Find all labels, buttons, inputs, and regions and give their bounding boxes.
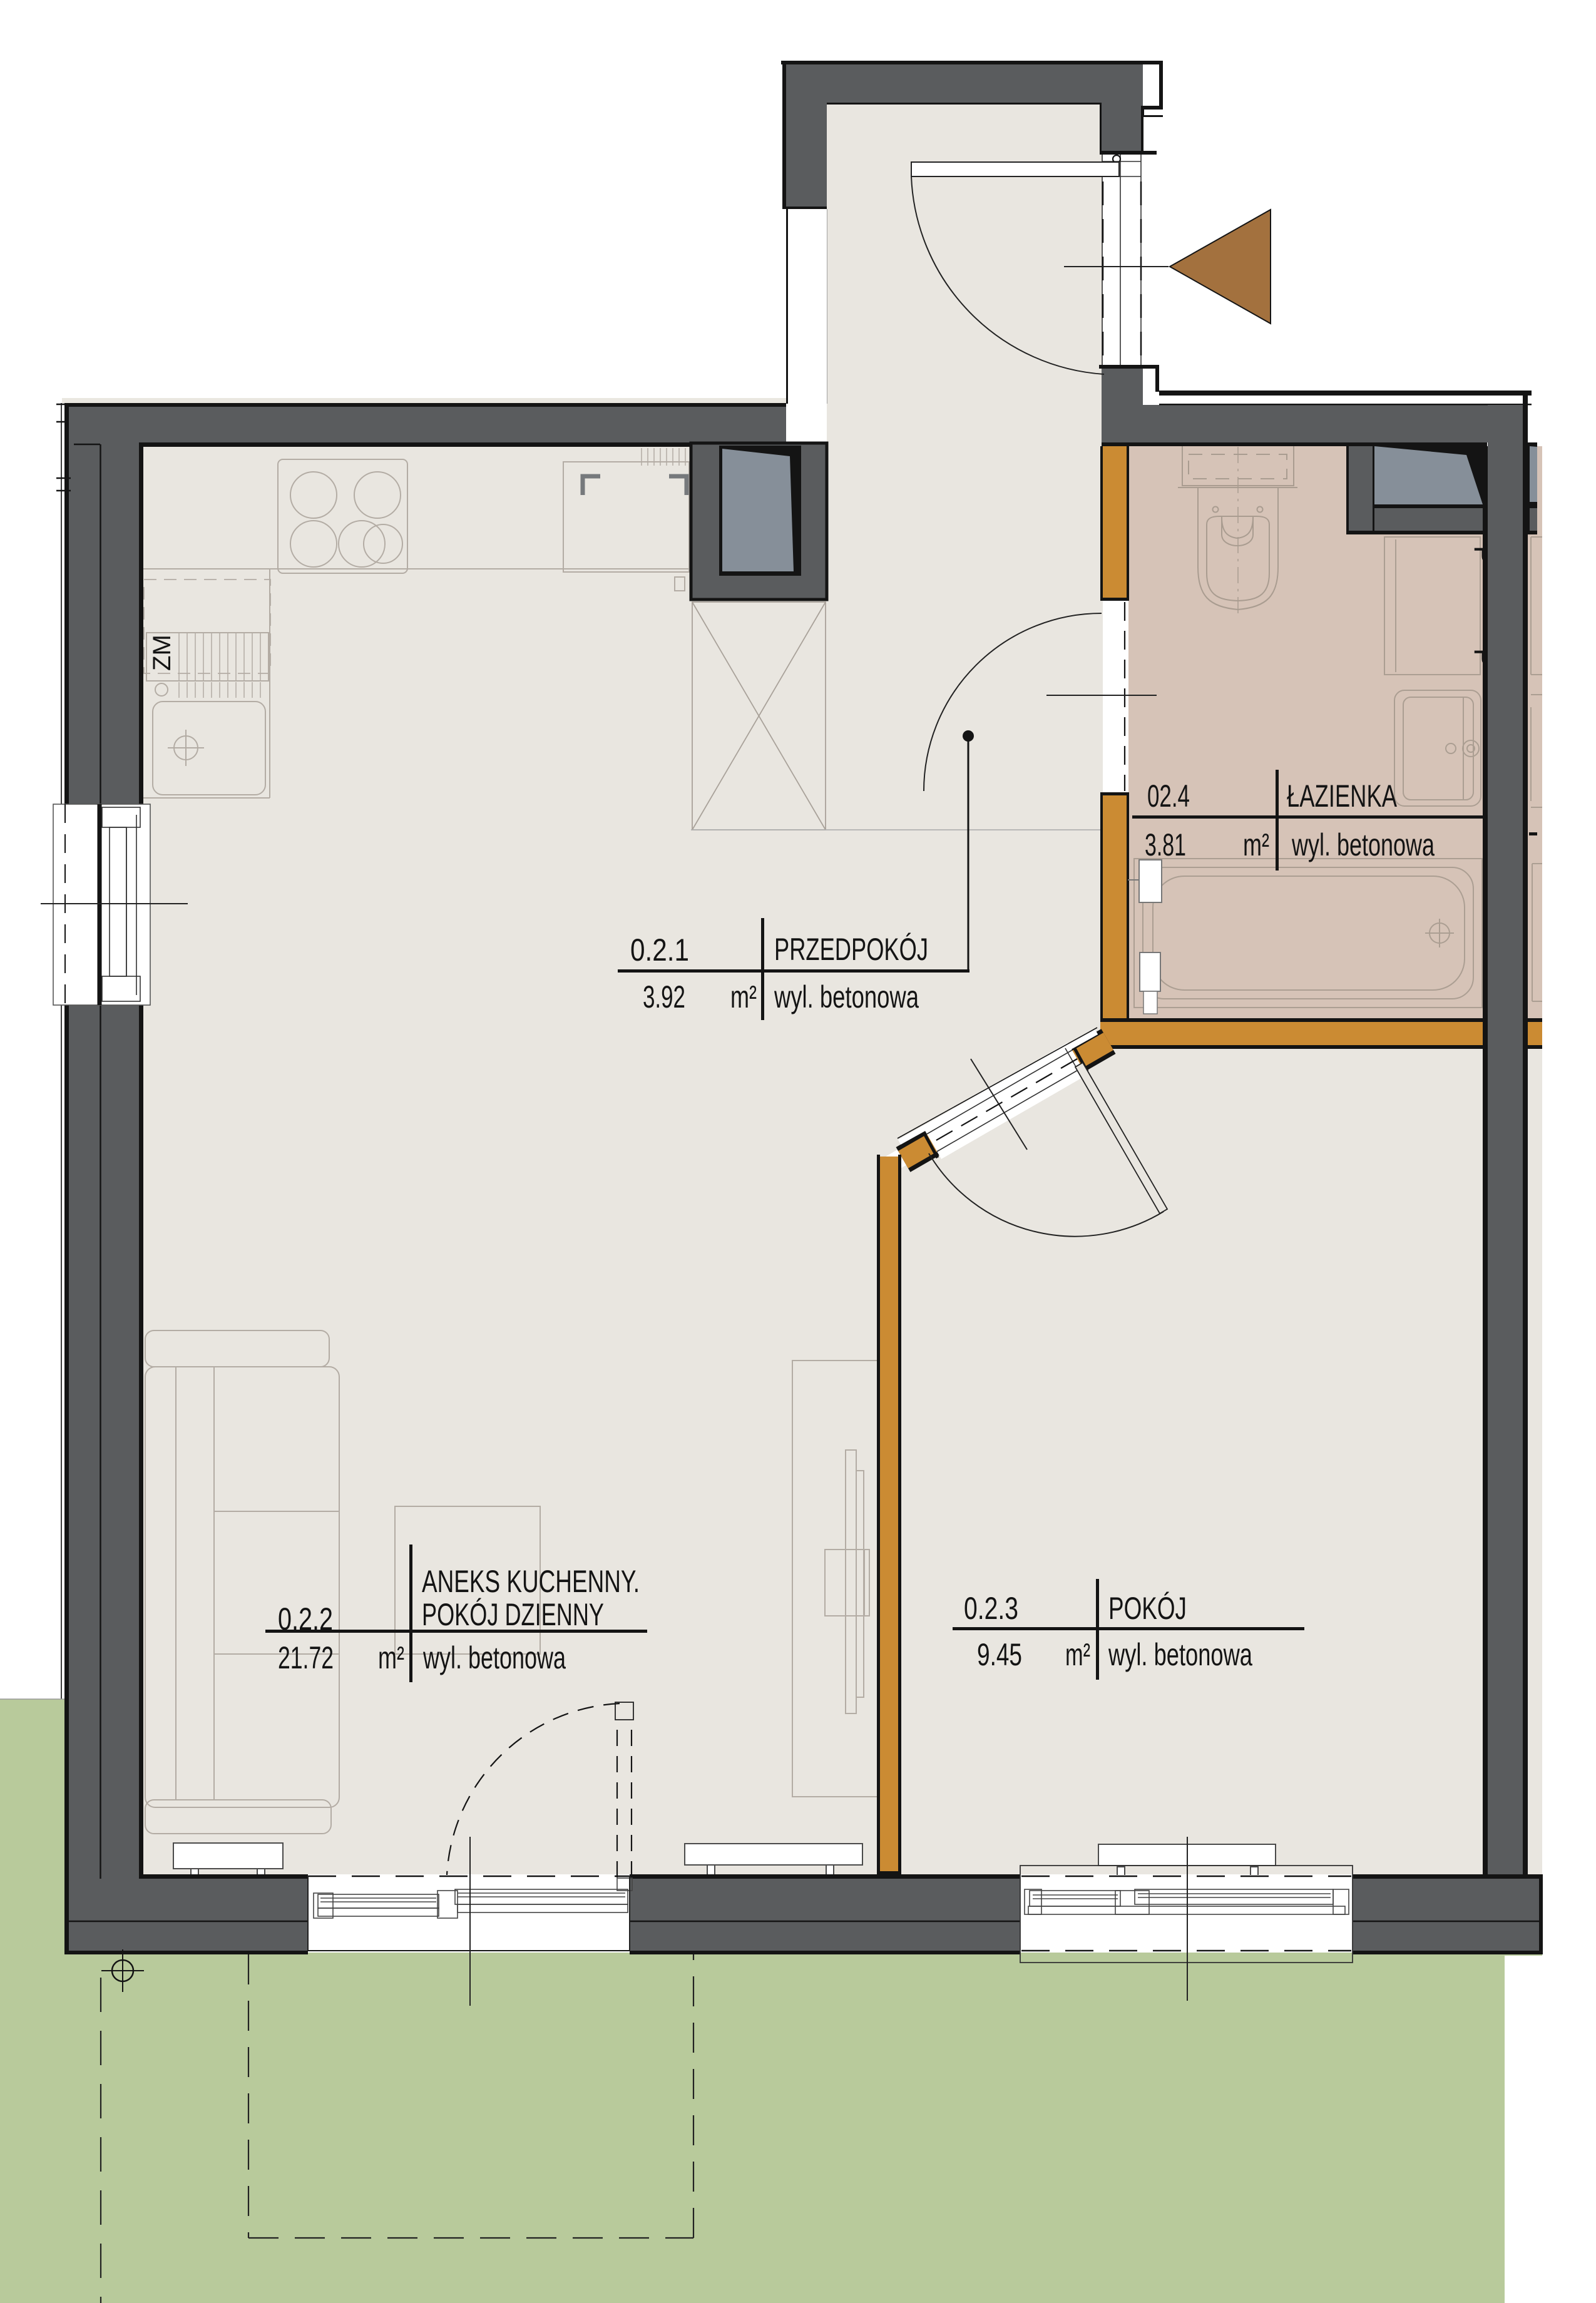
svg-text:wyl. betonowa: wyl. betonowa — [774, 979, 919, 1014]
svg-text:0.2.3: 0.2.3 — [964, 1591, 1018, 1626]
svg-text:02.4: 02.4 — [1147, 779, 1190, 814]
svg-text:wyl. betonowa: wyl. betonowa — [1291, 827, 1435, 862]
svg-text:9.45: 9.45 — [977, 1637, 1022, 1672]
svg-text:PRZEDPOKÓJ: PRZEDPOKÓJ — [774, 932, 928, 967]
svg-text:ZM: ZM — [148, 635, 176, 671]
svg-text:m²: m² — [730, 979, 757, 1014]
svg-text:3.81: 3.81 — [1145, 827, 1186, 862]
svg-text:POKÓJ DZIENNY: POKÓJ DZIENNY — [422, 1597, 604, 1632]
svg-text:wyl. betonowa: wyl. betonowa — [422, 1640, 566, 1675]
svg-text:3.92: 3.92 — [643, 979, 685, 1014]
svg-text:0.2.1: 0.2.1 — [630, 932, 689, 968]
svg-text:0.2.2: 0.2.2 — [278, 1601, 333, 1637]
svg-text:wyl. betonowa: wyl. betonowa — [1108, 1637, 1252, 1672]
svg-text:m²: m² — [1065, 1637, 1090, 1672]
svg-text:m²: m² — [378, 1640, 404, 1675]
svg-text:POKÓJ: POKÓJ — [1108, 1591, 1187, 1626]
svg-text:ANEKS KUCHENNY.: ANEKS KUCHENNY. — [422, 1564, 640, 1599]
svg-text:21.72: 21.72 — [278, 1640, 334, 1675]
svg-text:ŁAZIENKA: ŁAZIENKA — [1287, 779, 1397, 814]
svg-text:m²: m² — [1243, 827, 1269, 862]
